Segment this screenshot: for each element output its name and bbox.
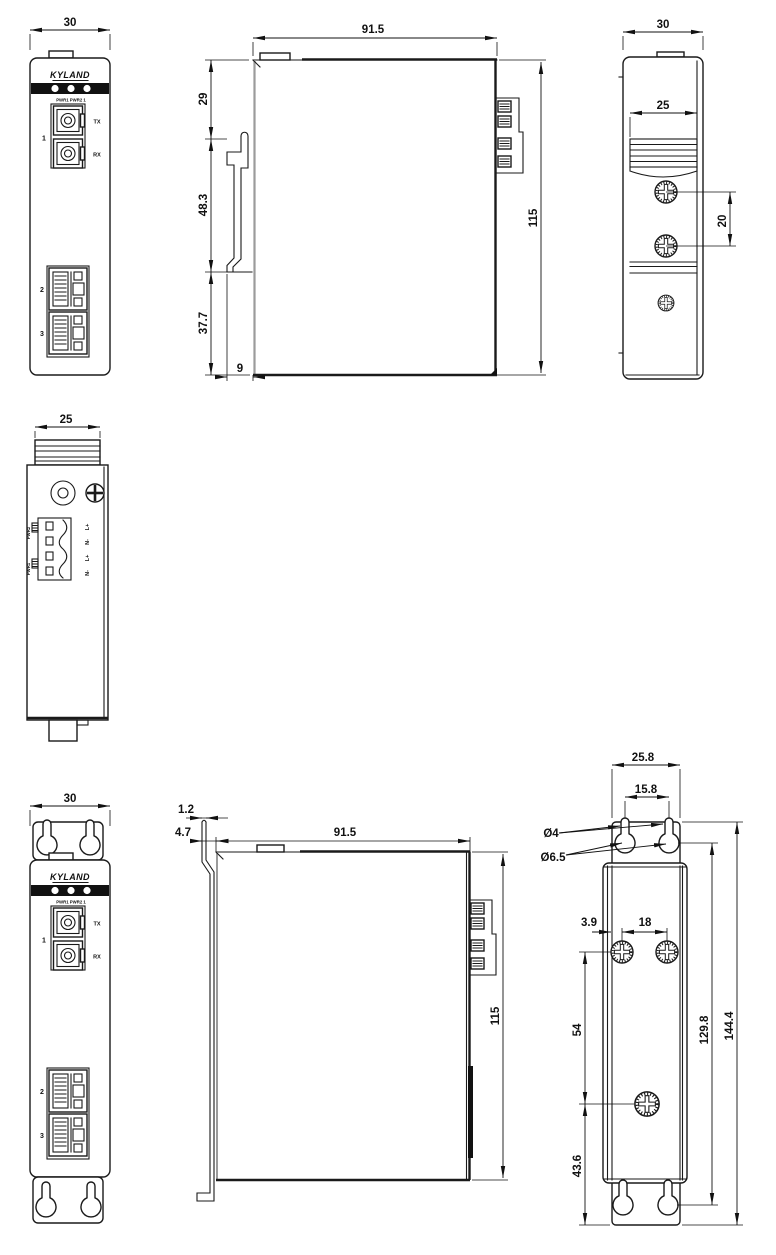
dia-hole-label: Ø6.5 — [541, 852, 567, 864]
rear-view-wall-mount: 25.8 15.8 Ø4 Ø6.5 3.9 18 54 43.6 129.8 1… — [541, 752, 743, 1225]
dim-rail-width-label: 25 — [60, 414, 73, 426]
device-body-rear — [603, 863, 687, 1183]
tx-label: TX — [93, 120, 100, 126]
port2-label: 2 — [40, 1089, 44, 1096]
dim-plate-offset-label: 4.7 — [175, 827, 191, 839]
dim-plate-height-label: 144.4 — [724, 1011, 736, 1040]
rx-label: RX — [93, 955, 101, 961]
dim-screw-span-label: 54 — [572, 1023, 584, 1036]
rear-view-din-rail: 30 25 20 — [619, 19, 736, 379]
wall-bracket-profile — [197, 820, 214, 1201]
rx-label: RX — [93, 153, 101, 159]
terminal-block-profile — [470, 900, 496, 975]
dia-slot-label: Ø4 — [543, 828, 559, 840]
dim-screw-edge-label: 3.9 — [581, 917, 597, 929]
dim-hole-span-label: 129.8 — [699, 1015, 711, 1044]
dim-plate-width-label: 25.8 — [632, 752, 655, 764]
port-slot-edge — [468, 1066, 473, 1158]
dim-seg-mid-label: 48.3 — [198, 194, 210, 216]
port2-label: 2 — [40, 287, 44, 294]
kyland-logo: KYLAND — [50, 872, 90, 882]
dim-seg-top-label: 29 — [198, 93, 210, 106]
port3-label: 3 — [40, 331, 44, 338]
technical-drawing-page: 30 KYLAND PWR1 PWR2 1 1 TX RX 2 3 91.5 2… — [0, 0, 776, 1250]
fiber-port-group-label: 1 — [42, 938, 46, 945]
din-clip-tab — [49, 51, 73, 58]
dim-width-label: 30 — [64, 17, 77, 29]
mount-screw-right — [656, 941, 678, 963]
dim-rail-width-label: 25 — [657, 100, 670, 112]
device-top-body — [27, 465, 108, 720]
mount-screw-bottom — [635, 1092, 659, 1116]
dim-screw-pitch-label: 20 — [717, 215, 729, 228]
front-view-din-rail: 30 KYLAND PWR1 PWR2 1 1 TX RX 2 3 — [30, 17, 110, 375]
dim-bottom-offset-label: 43.6 — [572, 1155, 584, 1177]
dim-width-label: 30 — [64, 793, 77, 805]
dim-height-label: 115 — [490, 1006, 502, 1025]
led-labels: PWR1 PWR2 1 — [56, 900, 86, 905]
dim-slot-pitch-label: 15.8 — [635, 784, 658, 796]
terminal3-label: L+ — [85, 555, 91, 562]
side-view-din-rail: 91.5 29 48.3 37.7 9 115 — [198, 24, 546, 381]
dim-depth-label: 91.5 — [362, 24, 385, 36]
ground-screw-icon — [86, 484, 104, 502]
top-view: 25 PWR2 PWR1 L+ N- L+ N- — [26, 414, 108, 741]
dim-height-label: 115 — [528, 208, 540, 227]
dim-depth-label: 91.5 — [334, 827, 357, 839]
fiber-port-group-label: 1 — [42, 136, 46, 143]
terminal2-label: N- — [85, 539, 91, 545]
front-view-wall-mount: 30 KYLAND PWR1 PWR2 1 1 TX RX 2 3 — [30, 793, 110, 1223]
kyland-logo: KYLAND — [50, 70, 90, 80]
port3-label: 3 — [40, 1133, 44, 1140]
mount-screw-left — [611, 941, 633, 963]
tx-label: TX — [93, 922, 100, 928]
pwr1-label: PWR1 — [26, 562, 31, 575]
dim-width-label: 30 — [657, 19, 670, 31]
case-screw — [658, 295, 674, 311]
side-view-wall-mount: 1.2 4.7 91.5 115 — [175, 804, 508, 1201]
dim-screw-pitch-label: 18 — [639, 917, 652, 929]
dim-clip-depth-label: 9 — [237, 363, 243, 375]
mechanical-drawing: 30 KYLAND PWR1 PWR2 1 1 TX RX 2 3 91.5 2… — [0, 0, 776, 1250]
dim-seg-bot-label: 37.7 — [198, 312, 210, 334]
terminal1-label: L+ — [85, 524, 91, 531]
din-rail-clip-profile — [227, 132, 252, 272]
dim-plate-thickness-label: 1.2 — [178, 804, 194, 816]
led-labels: PWR1 PWR2 1 — [56, 98, 86, 103]
pwr2-label: PWR2 — [26, 526, 31, 539]
terminal4-label: N- — [85, 570, 91, 576]
terminal-block-profile — [497, 98, 523, 173]
